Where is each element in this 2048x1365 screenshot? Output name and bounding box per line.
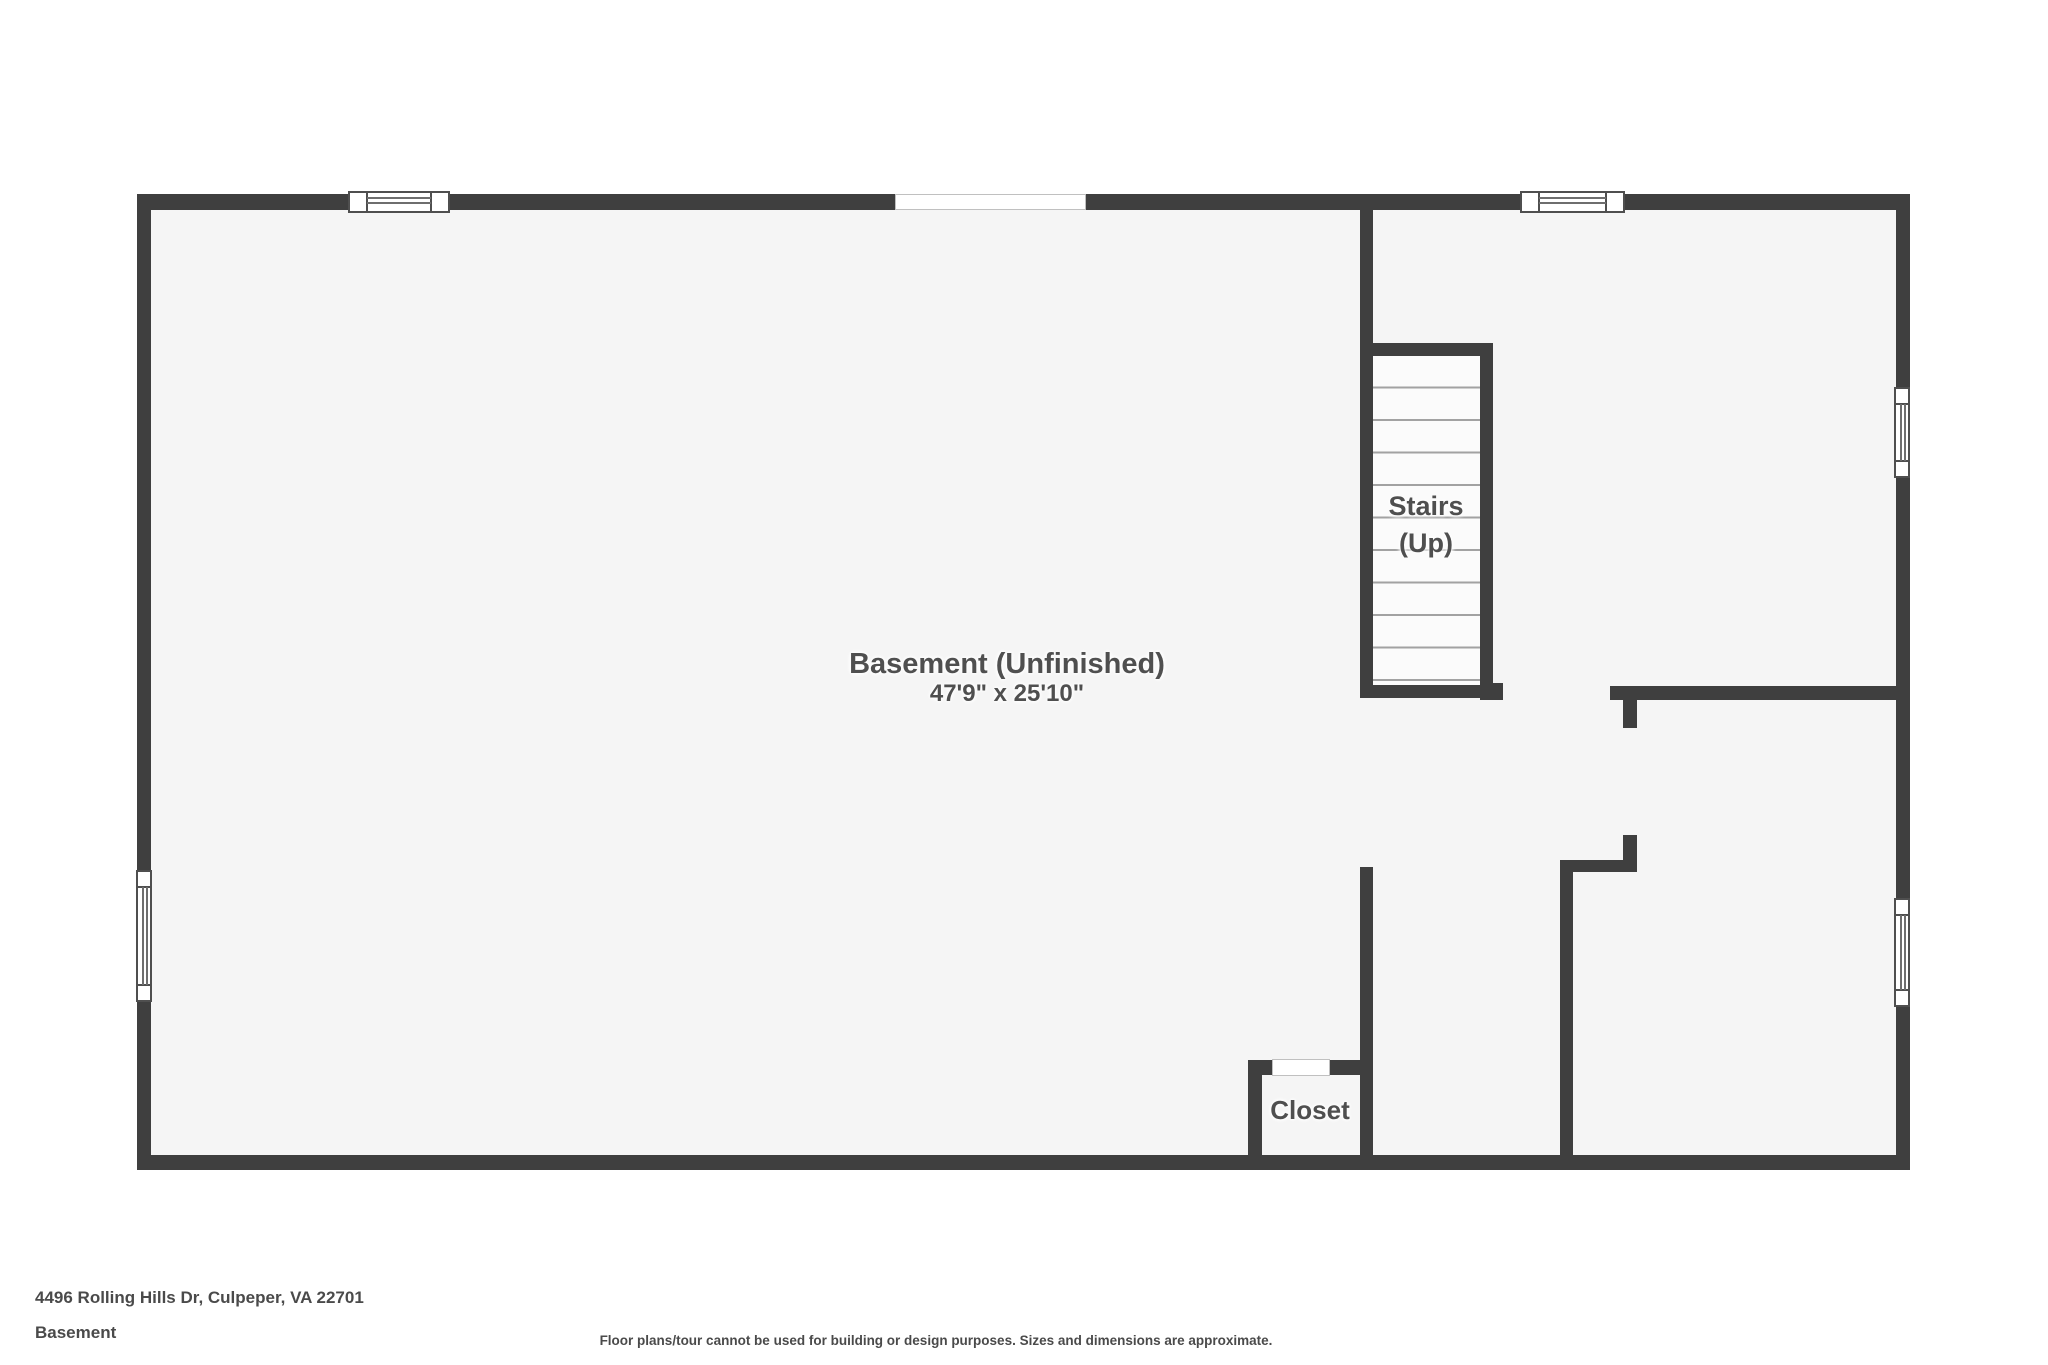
stairs-label-line2: (Up) xyxy=(1326,525,1526,562)
wall-exterior-left xyxy=(137,194,151,1170)
wall-opening-top xyxy=(895,194,1086,210)
basement-room-dimensions: 47'9" x 25'10" xyxy=(707,680,1307,708)
closet-door-opening xyxy=(1272,1059,1330,1076)
window-top-left xyxy=(348,191,450,213)
wall-exterior-right xyxy=(1896,194,1910,1170)
window-glass-line xyxy=(142,887,144,985)
window-sash xyxy=(1522,193,1540,211)
window-right-upper xyxy=(1894,387,1910,478)
window-sash xyxy=(430,193,448,211)
window-glass-line xyxy=(1900,915,1902,990)
footer-floor-name: Basement xyxy=(35,1323,116,1343)
window-sash xyxy=(138,984,150,1000)
window-top-right xyxy=(1520,191,1625,213)
stair-wall-left xyxy=(1360,210,1373,698)
basement-room-name: Basement (Unfinished) xyxy=(707,648,1307,680)
closet-wall-top-right-segment xyxy=(1330,1060,1367,1075)
stairs-label: Stairs (Up) xyxy=(1326,488,1526,562)
stair-wall-top xyxy=(1360,343,1492,356)
basement-room-label: Basement (Unfinished) 47'9" x 25'10" xyxy=(707,648,1307,708)
closet-wall-top-left-segment xyxy=(1248,1060,1272,1075)
window-sash xyxy=(1896,389,1908,405)
window-sash xyxy=(1605,193,1623,211)
window-glass-line xyxy=(1539,202,1606,204)
stair-wall-bottom-stub xyxy=(1480,683,1503,700)
window-glass-line xyxy=(1904,404,1906,461)
closet-label: Closet xyxy=(1210,1095,1410,1125)
window-sash xyxy=(138,872,150,888)
window-glass-line xyxy=(1904,915,1906,990)
footer-address: 4496 Rolling Hills Dr, Culpeper, VA 2270… xyxy=(35,1288,364,1308)
window-sash xyxy=(1896,460,1908,476)
window-sash xyxy=(350,193,368,211)
window-glass-line xyxy=(367,197,431,199)
window-right-lower xyxy=(1894,898,1910,1007)
stairs-label-line1: Stairs xyxy=(1326,488,1526,525)
window-sash xyxy=(1896,900,1908,916)
window-left xyxy=(136,870,152,1002)
window-glass-line xyxy=(146,887,148,985)
stair-wall-bottom xyxy=(1360,685,1480,698)
wall-exterior-bottom xyxy=(137,1155,1910,1170)
wall-door-stub-upper xyxy=(1623,700,1637,728)
wall-room-top xyxy=(1560,860,1637,872)
window-glass-line xyxy=(1539,197,1606,199)
wall-room-left xyxy=(1560,872,1573,1155)
footer-disclaimer: Floor plans/tour cannot be used for buil… xyxy=(436,1333,1436,1348)
window-sash xyxy=(1896,989,1908,1005)
floorplan-canvas: Basement (Unfinished) 47'9" x 25'10" Sta… xyxy=(0,0,2048,1365)
window-glass-line xyxy=(1900,404,1902,461)
window-glass-line xyxy=(367,202,431,204)
wall-hall-top xyxy=(1610,686,1896,700)
